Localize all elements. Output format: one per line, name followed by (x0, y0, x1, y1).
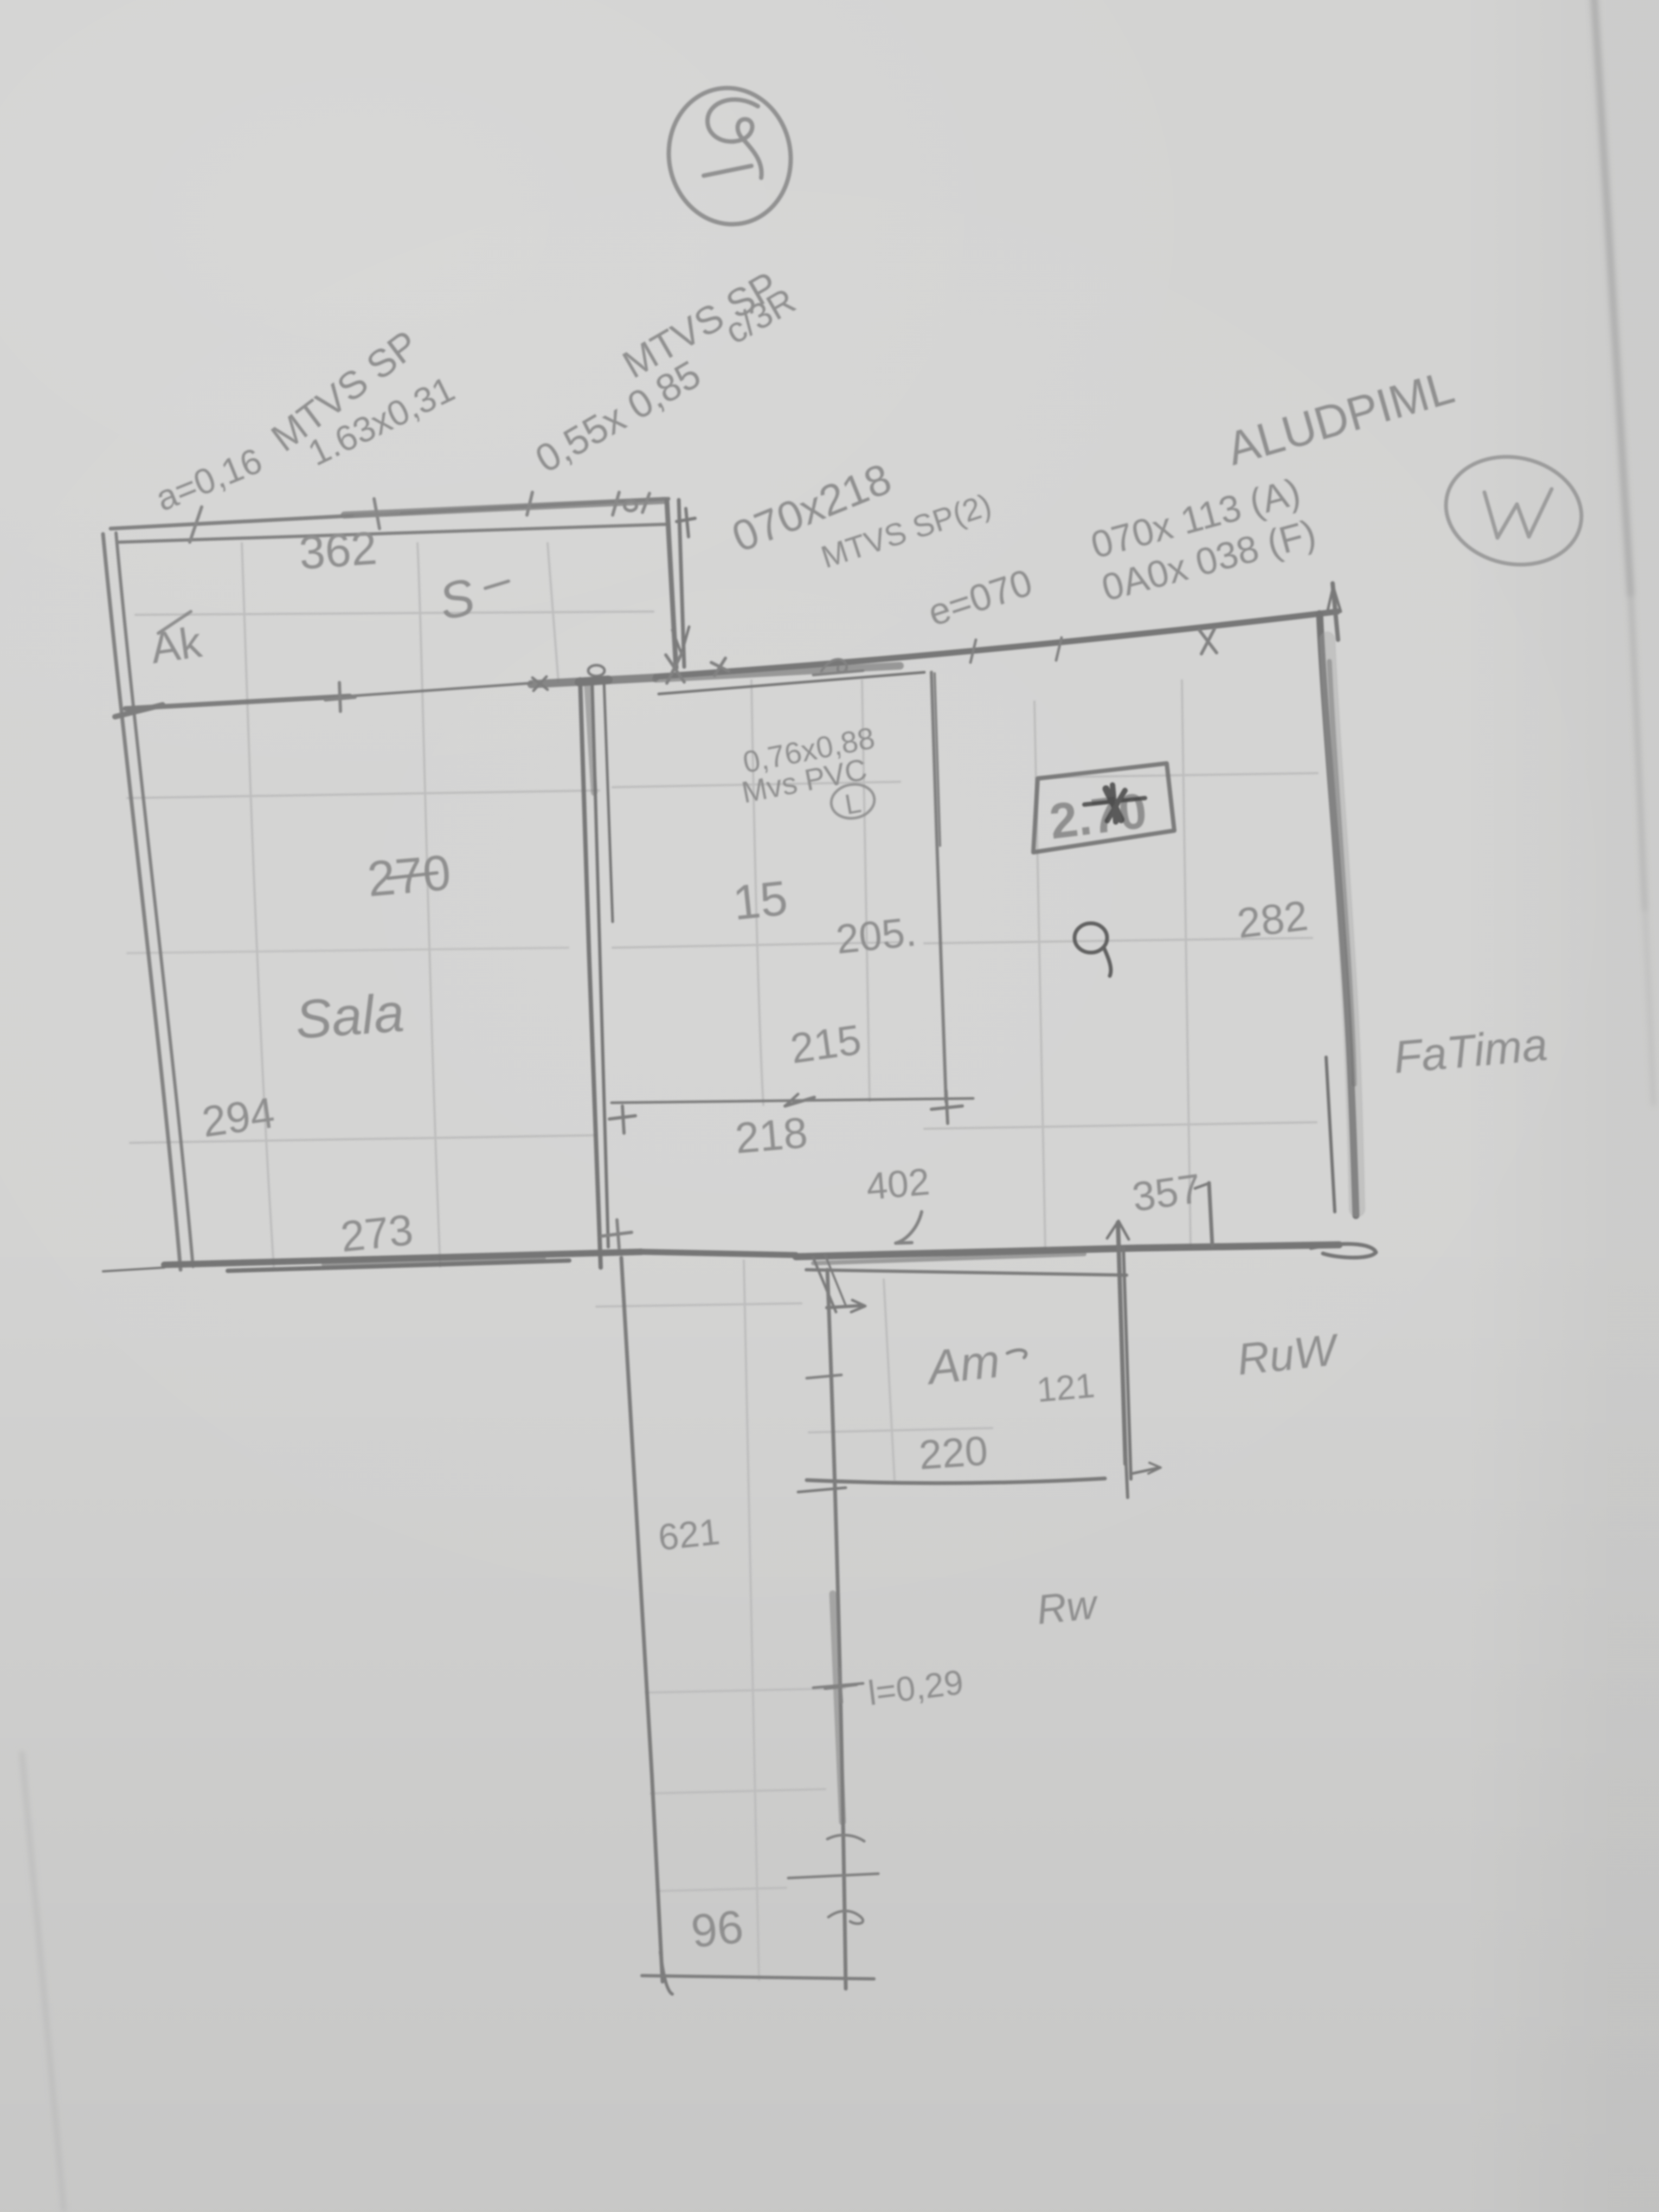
svg-text:220: 220 (917, 1427, 989, 1478)
svg-text:362: 362 (298, 522, 379, 580)
svg-text:a=0,16: a=0,16 (150, 440, 268, 519)
svg-text:ALUDPIML: ALUDPIML (1221, 361, 1459, 475)
svg-text:215: 215 (788, 1015, 864, 1072)
svg-text:121: 121 (1035, 1366, 1096, 1410)
svg-text:RuW: RuW (1235, 1325, 1342, 1385)
svg-text:FaTima: FaTima (1392, 1019, 1549, 1083)
svg-text:Sala: Sala (293, 982, 406, 1051)
svg-text:273: 273 (338, 1205, 415, 1261)
svg-text:e=070: e=070 (923, 561, 1037, 634)
svg-text:2.70: 2.70 (1046, 783, 1149, 850)
svg-text:l=0,29: l=0,29 (866, 1662, 966, 1713)
svg-text:96: 96 (689, 1901, 745, 1958)
svg-text:218: 218 (733, 1108, 809, 1162)
svg-text:Am: Am (923, 1334, 1002, 1395)
svg-text:357: 357 (1129, 1165, 1204, 1220)
svg-text:0,55x 0,85: 0,55x 0,85 (529, 352, 708, 481)
svg-text:L: L (843, 787, 864, 821)
svg-text:Rw: Rw (1034, 1581, 1101, 1633)
svg-text:282: 282 (1234, 891, 1310, 947)
svg-text:294: 294 (199, 1088, 278, 1146)
svg-text:205.: 205. (834, 909, 918, 963)
svg-text:15: 15 (730, 871, 790, 931)
svg-text:Ak: Ak (147, 618, 205, 672)
svg-text:402: 402 (865, 1160, 931, 1208)
svg-text:621: 621 (656, 1511, 722, 1558)
svg-text:S: S (434, 568, 480, 631)
